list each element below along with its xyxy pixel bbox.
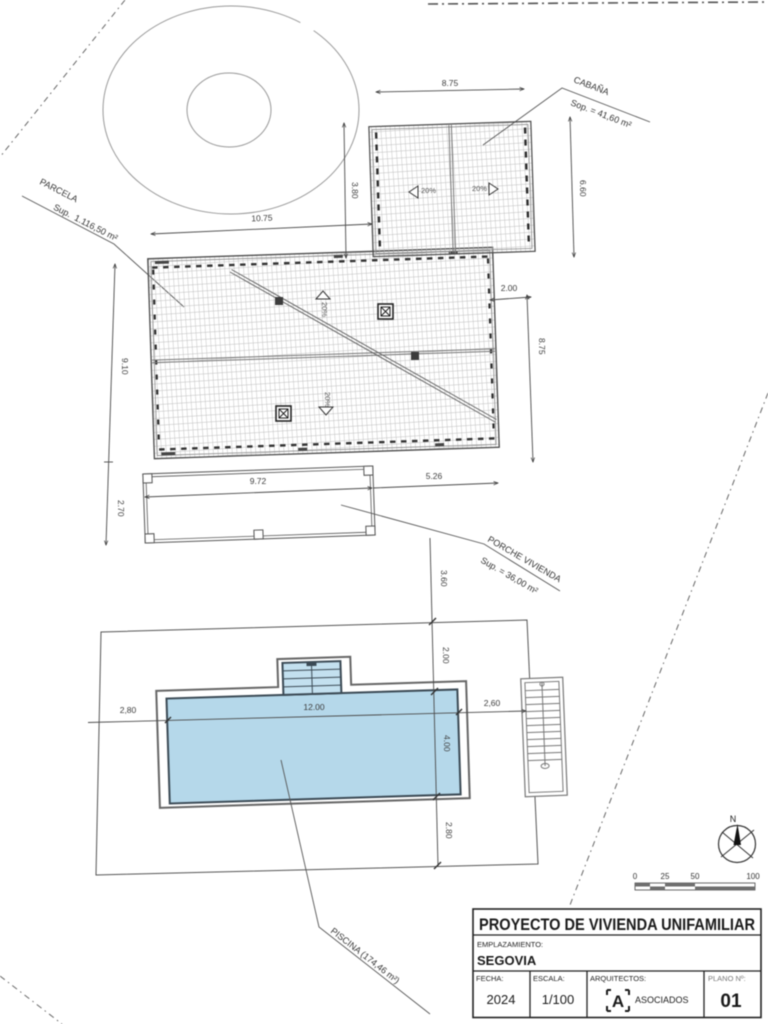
- svg-text:50: 50: [691, 872, 700, 881]
- svg-text:3.60: 3.60: [439, 570, 449, 587]
- svg-text:20%: 20%: [472, 184, 487, 193]
- svg-text:2.70: 2.70: [116, 500, 126, 517]
- svg-text:9.10: 9.10: [120, 358, 130, 375]
- svg-text:PLANO Nº:: PLANO Nº:: [708, 974, 746, 983]
- svg-text:01: 01: [720, 991, 742, 1012]
- svg-text:8.75: 8.75: [442, 78, 459, 88]
- svg-text:10.75: 10.75: [251, 213, 273, 224]
- svg-text:6.60: 6.60: [578, 180, 588, 197]
- svg-text:9.72: 9.72: [250, 476, 267, 486]
- svg-text:8.75: 8.75: [537, 338, 547, 355]
- svg-text:Sup. 1.116,50 m²: Sup. 1.116,50 m²: [52, 202, 120, 243]
- svg-text:ESCALA:: ESCALA:: [533, 974, 565, 983]
- svg-text:PARCELA: PARCELA: [38, 177, 79, 205]
- svg-text:100: 100: [746, 872, 760, 881]
- svg-text:EMPLAZAMIENTO:: EMPLAZAMIENTO:: [477, 940, 543, 949]
- svg-text:20%: 20%: [323, 392, 332, 407]
- svg-text:2,60: 2,60: [484, 698, 501, 708]
- svg-text:FECHA:: FECHA:: [476, 974, 504, 983]
- svg-text:2024: 2024: [487, 992, 516, 1007]
- svg-text:4.00: 4.00: [442, 735, 452, 752]
- svg-text:3.80: 3.80: [350, 182, 360, 199]
- svg-text:N: N: [730, 814, 737, 824]
- svg-text:PISCINA (174,46 m²): PISCINA (174,46 m²): [329, 926, 402, 986]
- svg-text:2.00: 2.00: [441, 647, 451, 664]
- svg-text:20%: 20%: [421, 186, 436, 195]
- svg-text:20%: 20%: [320, 302, 329, 317]
- svg-text:ASOCIADOS: ASOCIADOS: [635, 995, 689, 1005]
- svg-text:25: 25: [661, 872, 670, 881]
- svg-text:12.00: 12.00: [303, 702, 325, 712]
- svg-text:PORCHE VIVIENDA: PORCHE VIVIENDA: [486, 534, 563, 584]
- svg-text:PROYECTO DE VIVIENDA UNIFAMILI: PROYECTO DE VIVIENDA UNIFAMILIAR: [479, 915, 755, 934]
- svg-text:A: A: [612, 992, 624, 1011]
- svg-text:SEGOVIA: SEGOVIA: [477, 953, 537, 968]
- svg-text:0: 0: [633, 872, 638, 881]
- svg-text:5.26: 5.26: [426, 471, 443, 481]
- svg-text:1/100: 1/100: [542, 992, 575, 1007]
- svg-text:ARQUITECTOS:: ARQUITECTOS:: [590, 974, 646, 983]
- svg-text:2.80: 2.80: [444, 822, 454, 839]
- svg-text:Sop. = 41,60 m²: Sop. = 41,60 m²: [569, 98, 633, 130]
- svg-text:2,80: 2,80: [120, 705, 137, 715]
- svg-text:2.00: 2.00: [501, 283, 518, 293]
